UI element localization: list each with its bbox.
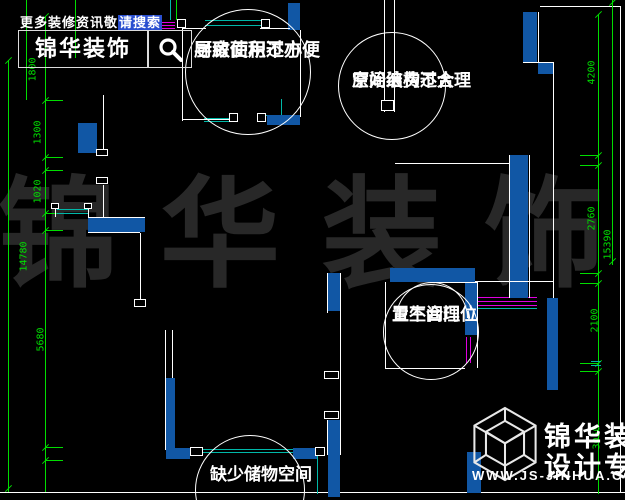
- wall-segment: [510, 155, 528, 298]
- footer-website[interactable]: WWW.JS-JINHUA.COM: [472, 468, 625, 483]
- dimension-line: [580, 165, 598, 166]
- dimension-line: [45, 16, 46, 492]
- door-line: [170, 0, 171, 20]
- door-jamb: [96, 177, 108, 184]
- door-jamb: [315, 447, 325, 456]
- dimension-line: [176, 0, 177, 20]
- dimension-label: 4200: [587, 51, 598, 95]
- door-jamb: [51, 203, 59, 209]
- dimension-line: [45, 460, 63, 461]
- wall-line: [172, 330, 173, 378]
- door-jamb: [84, 203, 92, 209]
- wall-segment: [538, 62, 554, 74]
- annotation-line: 置不合理: [392, 304, 460, 327]
- door-line: [317, 456, 318, 494]
- wall-line: [0, 492, 625, 493]
- annotation-circle-bathroom: [383, 284, 479, 380]
- dimension-line: [45, 100, 63, 101]
- dimension-label: 2760: [587, 197, 598, 241]
- wall-segment: [166, 448, 190, 459]
- search-hint-text: 更多装修资讯敬请搜索: [20, 12, 162, 31]
- door-jamb: [190, 447, 203, 456]
- wall-line: [553, 62, 554, 298]
- wall-line: [529, 155, 530, 298]
- wall-segment: [328, 273, 340, 311]
- wall-segment: [547, 298, 558, 390]
- dimension-label: 2100: [590, 299, 601, 343]
- wall-line: [88, 232, 140, 233]
- wall-line: [475, 281, 553, 282]
- door-jamb: [324, 411, 339, 419]
- wall-line: [103, 95, 104, 153]
- wall-line: [140, 233, 141, 307]
- wall-segment: [78, 123, 97, 153]
- wall-line: [509, 155, 510, 298]
- dimension-line: [45, 157, 63, 158]
- annotation-line: 导致使用不方便: [194, 38, 320, 62]
- wall-segment: [88, 218, 145, 232]
- door-line: [57, 209, 88, 210]
- dimension-label-total: 14780: [19, 235, 30, 279]
- annotation-line: 空间浪费过大: [352, 70, 454, 93]
- annotation-circle-kitchen: [185, 9, 311, 135]
- wall-line: [523, 62, 553, 63]
- wall-segment: [165, 378, 175, 450]
- window-line: [478, 301, 537, 302]
- wall-segment: [523, 12, 537, 62]
- door-line: [57, 213, 88, 214]
- window-line: [478, 305, 537, 306]
- door-jamb: [96, 149, 108, 156]
- dimension-label: 1020: [33, 170, 44, 214]
- wall-line: [103, 185, 104, 218]
- annotation-line: 缺少储物空间: [210, 464, 312, 487]
- door-line: [591, 361, 601, 362]
- wall-segment: [293, 448, 317, 459]
- dimension-line: [580, 283, 598, 284]
- dimension-label: 5680: [36, 318, 47, 362]
- wall-line: [327, 273, 328, 313]
- magnifier-icon: [157, 36, 185, 64]
- wall-line: [395, 163, 510, 164]
- dimension-label-total: 15390: [603, 223, 614, 267]
- wall-line: [540, 6, 620, 7]
- wall-segment: [390, 268, 475, 282]
- wall-line: [88, 217, 145, 218]
- dimension-line: [580, 273, 598, 274]
- dimension-line: [8, 60, 9, 492]
- dimension-line: [45, 230, 63, 231]
- wall-line: [327, 420, 328, 455]
- door-jamb: [324, 371, 339, 379]
- dimension-label: 1300: [33, 111, 44, 155]
- dimension-line: [580, 155, 598, 156]
- door-line: [591, 365, 601, 366]
- wall-segment: [328, 420, 340, 497]
- wall-line: [340, 273, 341, 455]
- dimension-line: [580, 371, 598, 372]
- door-jamb: [177, 19, 186, 28]
- search-hint-prefix: 更多装修资讯敬: [20, 15, 118, 30]
- dimension-line: [45, 447, 63, 448]
- dimension-line: [45, 170, 63, 171]
- dimension-line: [580, 363, 598, 364]
- search-keyword-box[interactable]: 锦华装饰: [18, 30, 148, 68]
- door-line: [478, 308, 537, 309]
- door-jamb: [134, 299, 146, 307]
- search-hint-highlight: 请搜索: [118, 15, 162, 30]
- cad-canvas: 锦华装饰 厨房面积过小 导致使用不方便 原始结构不合理 空间浪费过大 卫生间门位…: [0, 0, 625, 500]
- wall-line: [538, 12, 539, 62]
- search-button[interactable]: [148, 30, 192, 68]
- wall-line: [165, 330, 166, 450]
